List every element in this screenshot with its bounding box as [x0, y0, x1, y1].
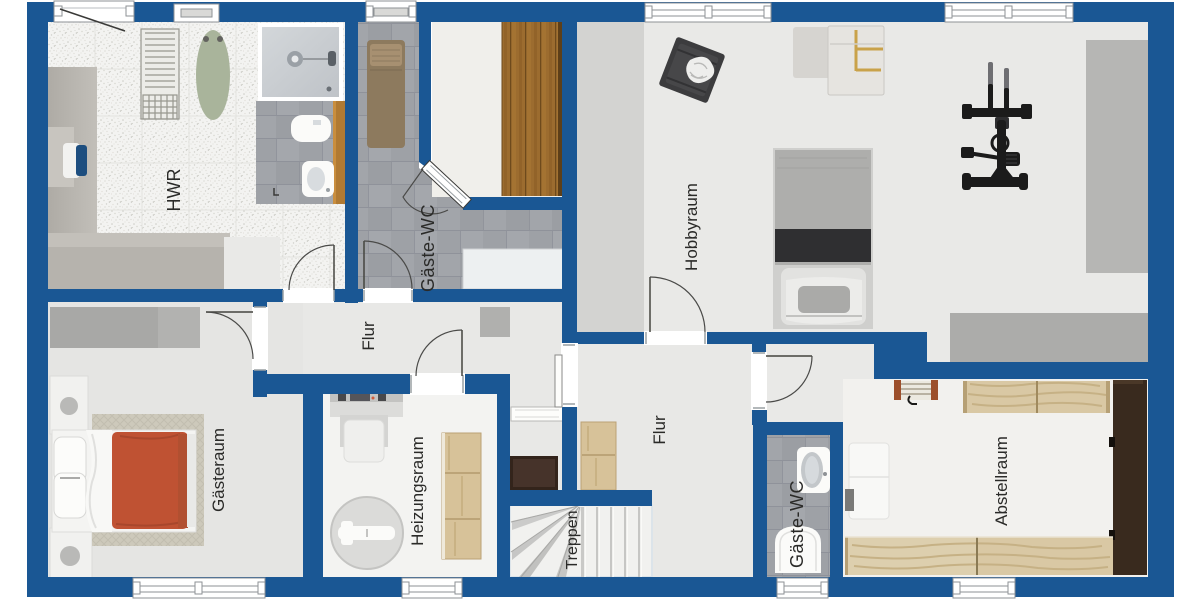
- svg-text:Flur: Flur: [359, 321, 378, 351]
- svg-text:Gäste-WC: Gäste-WC: [418, 204, 438, 292]
- svg-text:Gäste-WC: Gäste-WC: [787, 480, 807, 568]
- svg-text:Treppen: Treppen: [564, 511, 581, 570]
- svg-text:Flur: Flur: [650, 415, 669, 445]
- svg-text:Abstellraum: Abstellraum: [992, 436, 1011, 526]
- svg-text:HWR: HWR: [164, 169, 184, 212]
- svg-text:Gästeraum: Gästeraum: [209, 428, 228, 512]
- svg-text:Hobbyraum: Hobbyraum: [682, 183, 701, 271]
- svg-text:Heizungsraum: Heizungsraum: [408, 436, 427, 546]
